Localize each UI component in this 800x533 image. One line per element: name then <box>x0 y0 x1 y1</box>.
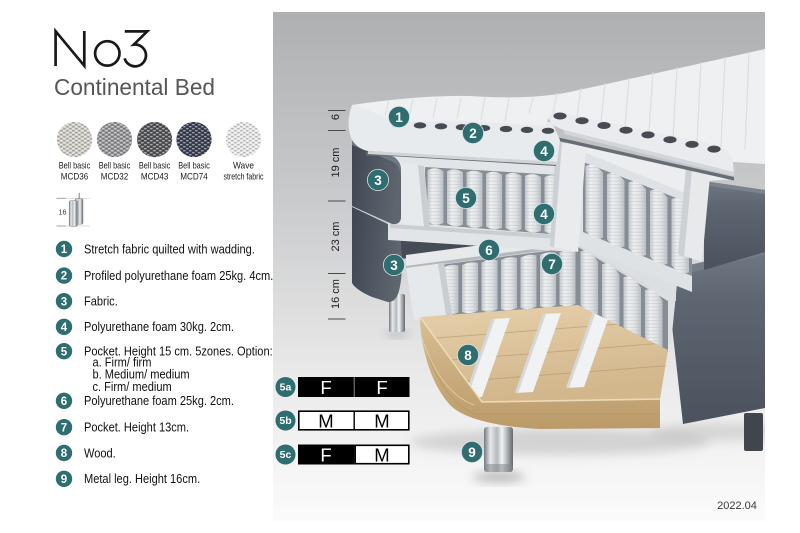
svg-text:2: 2 <box>469 126 477 141</box>
svg-text:Bell basic: Bell basic <box>59 160 91 171</box>
svg-text:3: 3 <box>374 173 382 188</box>
svg-text:Metal leg. Height 16cm.: Metal leg. Height 16cm. <box>84 472 200 487</box>
svg-text:9: 9 <box>61 474 67 486</box>
svg-text:4: 4 <box>61 322 68 334</box>
svg-text:2: 2 <box>61 271 67 283</box>
svg-text:9: 9 <box>468 445 476 460</box>
svg-text:Bell basic: Bell basic <box>139 160 171 171</box>
svg-text:M: M <box>374 411 389 432</box>
svg-text:4: 4 <box>540 207 548 222</box>
svg-text:M: M <box>374 445 389 466</box>
svg-text:F: F <box>320 377 331 398</box>
svg-text:M: M <box>318 411 333 432</box>
svg-text:23 cm: 23 cm <box>330 222 342 252</box>
svg-text:c. Firm/ medium: c. Firm/ medium <box>92 379 171 394</box>
svg-text:3: 3 <box>61 296 67 308</box>
svg-text:Bell basic: Bell basic <box>178 160 210 171</box>
svg-text:stretch fabric: stretch fabric <box>224 170 264 181</box>
svg-text:MCD43: MCD43 <box>141 170 169 181</box>
svg-text:Pocket. Height 13cm.: Pocket. Height 13cm. <box>84 420 189 435</box>
svg-text:2022.04: 2022.04 <box>717 500 757 512</box>
svg-text:16 cm: 16 cm <box>330 279 342 309</box>
svg-text:5: 5 <box>462 191 470 206</box>
svg-text:5b: 5b <box>279 415 291 427</box>
svg-text:6: 6 <box>485 243 493 258</box>
svg-text:6: 6 <box>61 396 67 408</box>
svg-text:5: 5 <box>61 346 68 358</box>
svg-text:Wave: Wave <box>233 160 254 171</box>
svg-text:F: F <box>320 445 331 466</box>
svg-text:1: 1 <box>395 110 403 125</box>
svg-text:5c: 5c <box>280 449 292 461</box>
svg-text:Polyurethane foam 30kg. 2cm.: Polyurethane foam 30kg. 2cm. <box>84 320 234 335</box>
svg-text:Stretch fabric quilted with wa: Stretch fabric quilted with wadding. <box>84 242 255 257</box>
svg-text:19 cm: 19 cm <box>330 148 342 178</box>
svg-text:MCD36: MCD36 <box>61 170 89 181</box>
svg-text:16: 16 <box>59 208 67 217</box>
svg-text:1: 1 <box>61 244 68 256</box>
svg-text:F: F <box>376 377 387 398</box>
svg-text:Polyurethane foam 25kg. 2cm.: Polyurethane foam 25kg. 2cm. <box>84 394 234 409</box>
svg-text:Wood.: Wood. <box>84 446 116 461</box>
svg-text:8: 8 <box>464 348 472 363</box>
svg-text:7: 7 <box>548 257 556 272</box>
svg-text:7: 7 <box>61 422 67 434</box>
svg-text:4: 4 <box>540 144 548 159</box>
svg-text:Profiled polyurethane foam 25k: Profiled polyurethane foam 25kg. 4cm. <box>84 268 273 283</box>
svg-text:Fabric.: Fabric. <box>84 294 118 309</box>
svg-text:MCD74: MCD74 <box>180 170 208 181</box>
svg-text:Bell basic: Bell basic <box>99 160 131 171</box>
svg-text:Continental Bed: Continental Bed <box>54 74 215 100</box>
svg-text:5a: 5a <box>280 382 292 394</box>
svg-text:8: 8 <box>61 448 68 460</box>
svg-text:3: 3 <box>390 258 398 273</box>
svg-text:MCD32: MCD32 <box>101 170 129 181</box>
svg-text:6: 6 <box>330 114 342 120</box>
